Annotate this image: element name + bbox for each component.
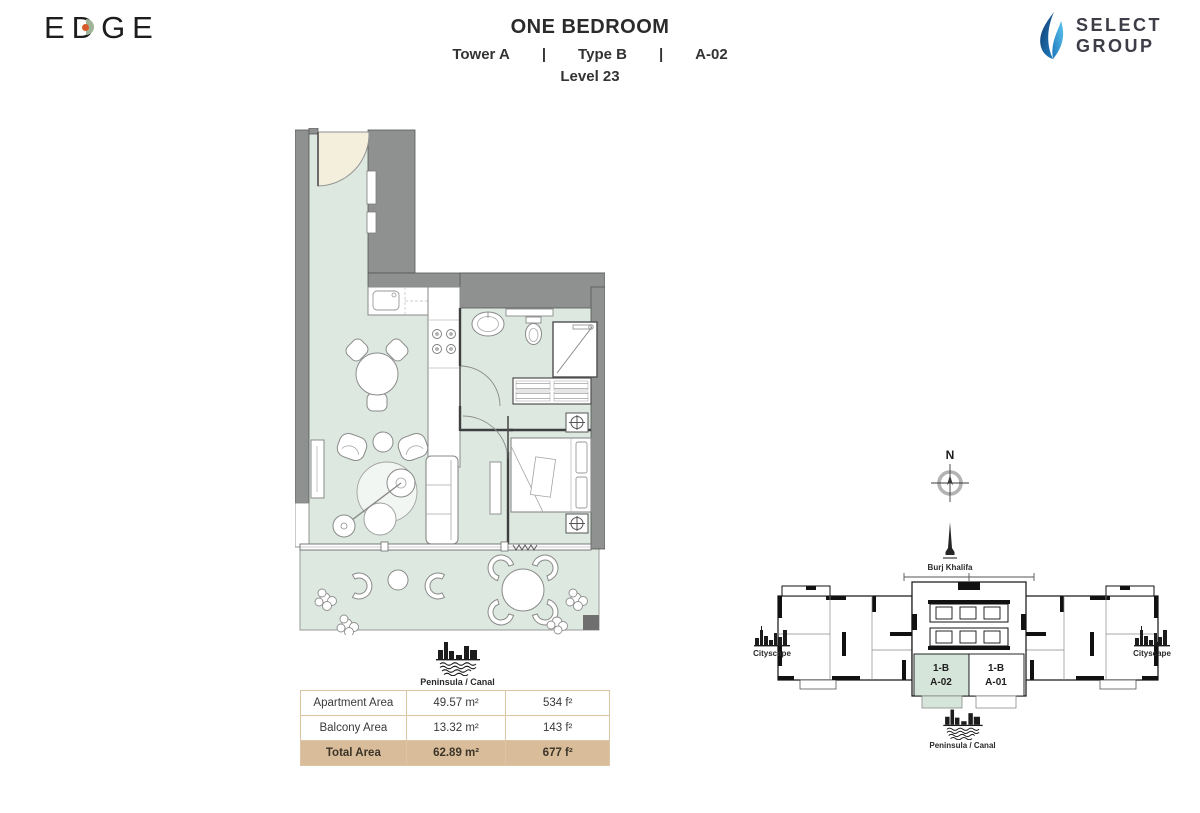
area-metric: 13.32 m² [406, 716, 506, 741]
area-label: Apartment Area [301, 691, 407, 716]
compass-icon [928, 462, 972, 506]
burj-khalifa-icon [941, 522, 959, 562]
group-word: GROUP [1076, 36, 1162, 57]
key-plan: 1-B A-02 1-B A-01 [772, 570, 1164, 720]
unit-a02-number: A-02 [930, 677, 952, 688]
edge-logo-orange-dot [82, 24, 89, 31]
select-word: SELECT [1076, 15, 1162, 36]
subtitle-row: Tower A | Type B | A-02 [400, 46, 780, 63]
keyplan-bottom-landmark: Peninsula / Canal [905, 706, 1020, 751]
area-label: Balcony Area [301, 716, 407, 741]
table-row-total: Total Area 62.89 m² 677 f² [301, 741, 610, 766]
stove [428, 287, 460, 467]
area-imperial: 534 f² [506, 691, 610, 716]
area-imperial: 143 f² [506, 716, 610, 741]
select-group-text: SELECT GROUP [1076, 15, 1162, 56]
area-imperial: 677 f² [506, 741, 610, 766]
select-group-logo: SELECT GROUP [1038, 12, 1162, 60]
burj-khalifa-landmark: Burj Khalifa [910, 522, 990, 573]
tower-label: Tower A [452, 46, 510, 63]
cityscape-right-landmark: Cityscape [1118, 624, 1186, 659]
edge-logo-text: EDGE [44, 10, 160, 45]
elevator-bank [928, 628, 1010, 650]
toilet [526, 317, 542, 345]
unit-label: A-02 [695, 46, 728, 63]
page-title: ONE BEDROOM [400, 16, 780, 39]
select-group-flame-icon [1038, 12, 1068, 60]
area-table: Apartment Area 49.57 m² 534 f² Balcony A… [300, 690, 610, 766]
keyplan-unit-a01: 1-B A-01 [969, 654, 1024, 708]
vanity-counter [506, 309, 553, 316]
table-row-apartment: Apartment Area 49.57 m² 534 f² [301, 691, 610, 716]
keyplan-unit-a02: 1-B A-02 [914, 654, 969, 708]
level-label: Level 23 [400, 68, 780, 85]
outdoor-table [502, 569, 544, 611]
floorplan-sheet: EDGE ONE BEDROOM Tower A | Type B | A-02… [0, 0, 1200, 813]
separator: | [659, 46, 663, 63]
type-label: Type B [578, 46, 627, 63]
outdoor-side-table [388, 570, 408, 590]
kitchen-counter [368, 287, 430, 315]
area-metric: 49.57 m² [406, 691, 506, 716]
unit-floor-plan [295, 128, 605, 635]
peninsula-canal-icon [939, 706, 987, 740]
side-table [373, 432, 393, 452]
cityscape-left-label: Cityscape [738, 650, 806, 659]
peninsula-canal-icon [432, 638, 484, 676]
keyplan-bottom-label: Peninsula / Canal [905, 742, 1020, 751]
wall-niches [367, 171, 376, 233]
compass: N [928, 448, 972, 509]
table-row-balcony: Balcony Area 13.32 m² 143 f² [301, 716, 610, 741]
unit-a01-type: 1-B [988, 663, 1004, 674]
unit-a01-number: A-01 [985, 677, 1007, 688]
plan-view-landmark: Peninsula / Canal [405, 638, 510, 688]
cityscape-left-landmark: Cityscape [738, 624, 806, 659]
console [490, 462, 501, 514]
shower [553, 322, 597, 377]
dining-table [356, 353, 398, 395]
balcony-column [583, 615, 599, 630]
cityscape-icon [1134, 624, 1170, 648]
wardrobe [513, 378, 591, 404]
plan-view-label: Peninsula / Canal [405, 678, 510, 688]
cityscape-right-label: Cityscape [1118, 650, 1186, 659]
header: ONE BEDROOM Tower A | Type B | A-02 Leve… [400, 16, 780, 85]
compass-north-label: N [928, 448, 972, 462]
area-label: Total Area [301, 741, 407, 766]
keyplan-bracket [904, 573, 1034, 581]
unit-a02-type: 1-B [933, 663, 949, 674]
separator: | [542, 46, 546, 63]
cityscape-icon [754, 624, 790, 648]
edge-logo: EDGE [44, 10, 160, 46]
bed [511, 438, 591, 512]
area-metric: 62.89 m² [406, 741, 506, 766]
elevator-bank [928, 600, 1010, 622]
